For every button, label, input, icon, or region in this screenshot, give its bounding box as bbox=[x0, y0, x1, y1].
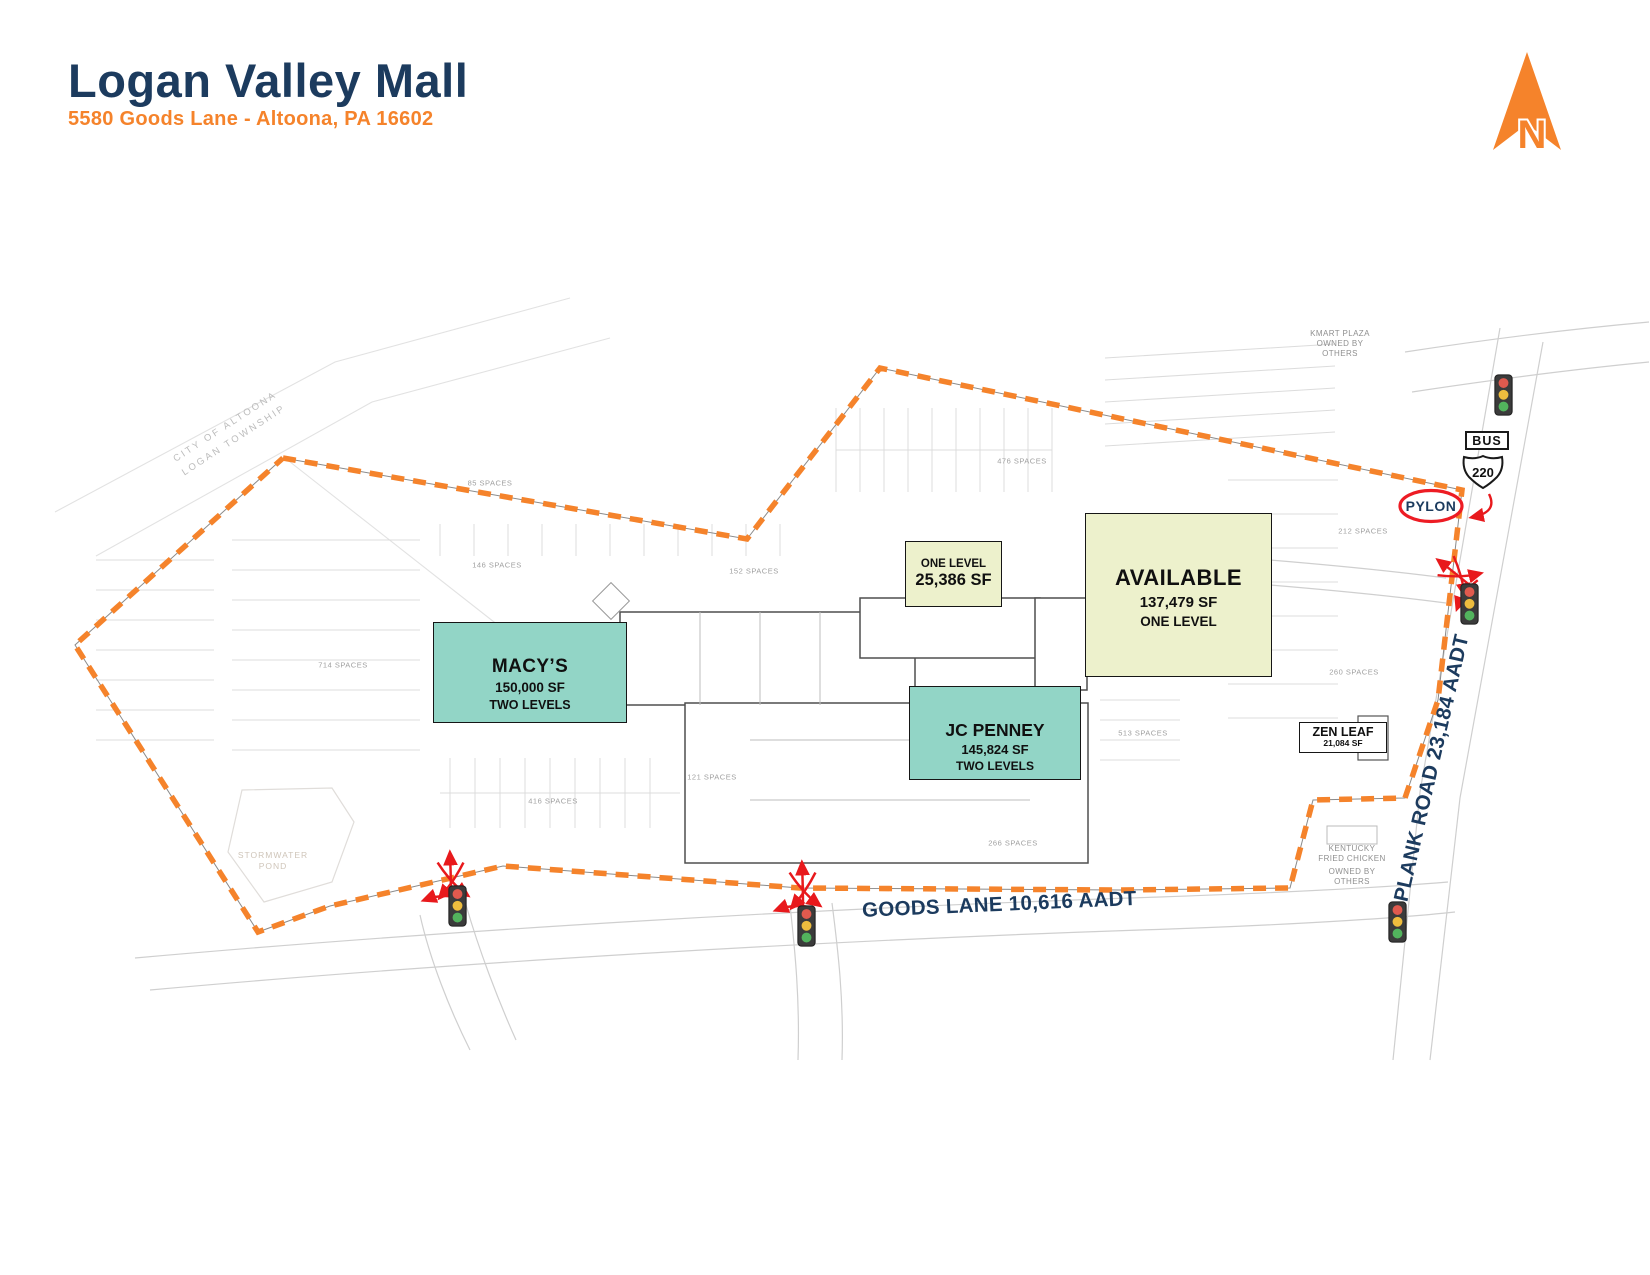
anchor-macys: MACY’S 150,000 SF TWO LEVELS bbox=[433, 622, 627, 723]
parking-count-label: 146 SPACES bbox=[472, 561, 521, 570]
bus-sign-label: BUS bbox=[1472, 434, 1501, 448]
anchor-macys-levels: TWO LEVELS bbox=[489, 698, 570, 712]
page-title: Logan Valley Mall bbox=[68, 56, 468, 105]
parking-count-label: 152 SPACES bbox=[729, 567, 778, 576]
anchor-zen-leaf: ZEN LEAF 21,084 SF bbox=[1299, 722, 1387, 753]
anchor-jcpenney-sf: 145,824 SF bbox=[961, 742, 1028, 757]
parking-count-label: 85 SPACES bbox=[468, 479, 513, 488]
anchor-zen-leaf-sf: 21,084 SF bbox=[1323, 739, 1362, 748]
parking-count-label: 476 SPACES bbox=[997, 457, 1046, 466]
pylon-entry-arrow-icon bbox=[1473, 494, 1491, 517]
anchor-jcpenney-name: JC PENNEY bbox=[945, 720, 1044, 741]
traffic-light-icon bbox=[1461, 584, 1478, 624]
anchor-available-name: AVAILABLE bbox=[1115, 565, 1242, 591]
anchor-jcpenney-levels: TWO LEVELS bbox=[956, 759, 1034, 773]
traffic-light-icon bbox=[1495, 375, 1512, 415]
north-arrow-icon: N bbox=[1493, 52, 1561, 157]
stormwater-pond-outline bbox=[228, 788, 354, 902]
anchor-available-levels: ONE LEVEL bbox=[1140, 614, 1217, 629]
traffic-light-icon bbox=[798, 906, 815, 946]
anchor-one-level: ONE LEVEL 25,386 SF bbox=[905, 541, 1002, 607]
north-letter: N bbox=[1518, 113, 1547, 157]
bus-route-shield: BUS 220 bbox=[1464, 432, 1508, 488]
header: Logan Valley Mall 5580 Goods Lane - Alto… bbox=[68, 56, 468, 131]
parking-count-label: 121 SPACES bbox=[687, 773, 736, 782]
page-subtitle: 5580 Goods Lane - Altoona, PA 16602 bbox=[68, 108, 468, 131]
anchor-available-sf: 137,479 SF bbox=[1140, 594, 1218, 611]
site-plan-canvas: BUS 220 PYLON N Logan Valley Mall 5580 G… bbox=[0, 0, 1650, 1275]
site-plan-map: BUS 220 PYLON N bbox=[0, 0, 1650, 1275]
pylon-label: PYLON bbox=[1406, 498, 1457, 514]
parking-count-label: 714 SPACES bbox=[318, 661, 367, 670]
parking-count-label: 212 SPACES bbox=[1338, 527, 1387, 536]
stormwater-pond-label: STORMWATER POND bbox=[213, 850, 333, 872]
anchor-macys-sf: 150,000 SF bbox=[495, 680, 565, 695]
kmart-plaza-label: KMART PLAZA OWNED BY OTHERS bbox=[1280, 329, 1400, 359]
traffic-light-icon bbox=[449, 886, 466, 926]
anchor-jcpenney: JC PENNEY 145,824 SF TWO LEVELS bbox=[909, 686, 1081, 780]
anchor-one-level-sf: 25,386 SF bbox=[915, 571, 991, 590]
parking-count-label: 260 SPACES bbox=[1329, 668, 1378, 677]
kfc-label: KENTUCKY FRIED CHICKEN OWNED BY OTHERS bbox=[1292, 844, 1412, 887]
anchor-available: AVAILABLE 137,479 SF ONE LEVEL bbox=[1085, 513, 1272, 677]
pylon-sign: PYLON bbox=[1400, 491, 1462, 522]
parking-count-label: 513 SPACES bbox=[1118, 729, 1167, 738]
anchor-one-level-name: ONE LEVEL bbox=[921, 558, 986, 570]
parking-count-label: 416 SPACES bbox=[528, 797, 577, 806]
anchor-macys-name: MACY’S bbox=[492, 656, 568, 678]
route-number-label: 220 bbox=[1472, 465, 1494, 480]
parking-count-label: 266 SPACES bbox=[988, 839, 1037, 848]
